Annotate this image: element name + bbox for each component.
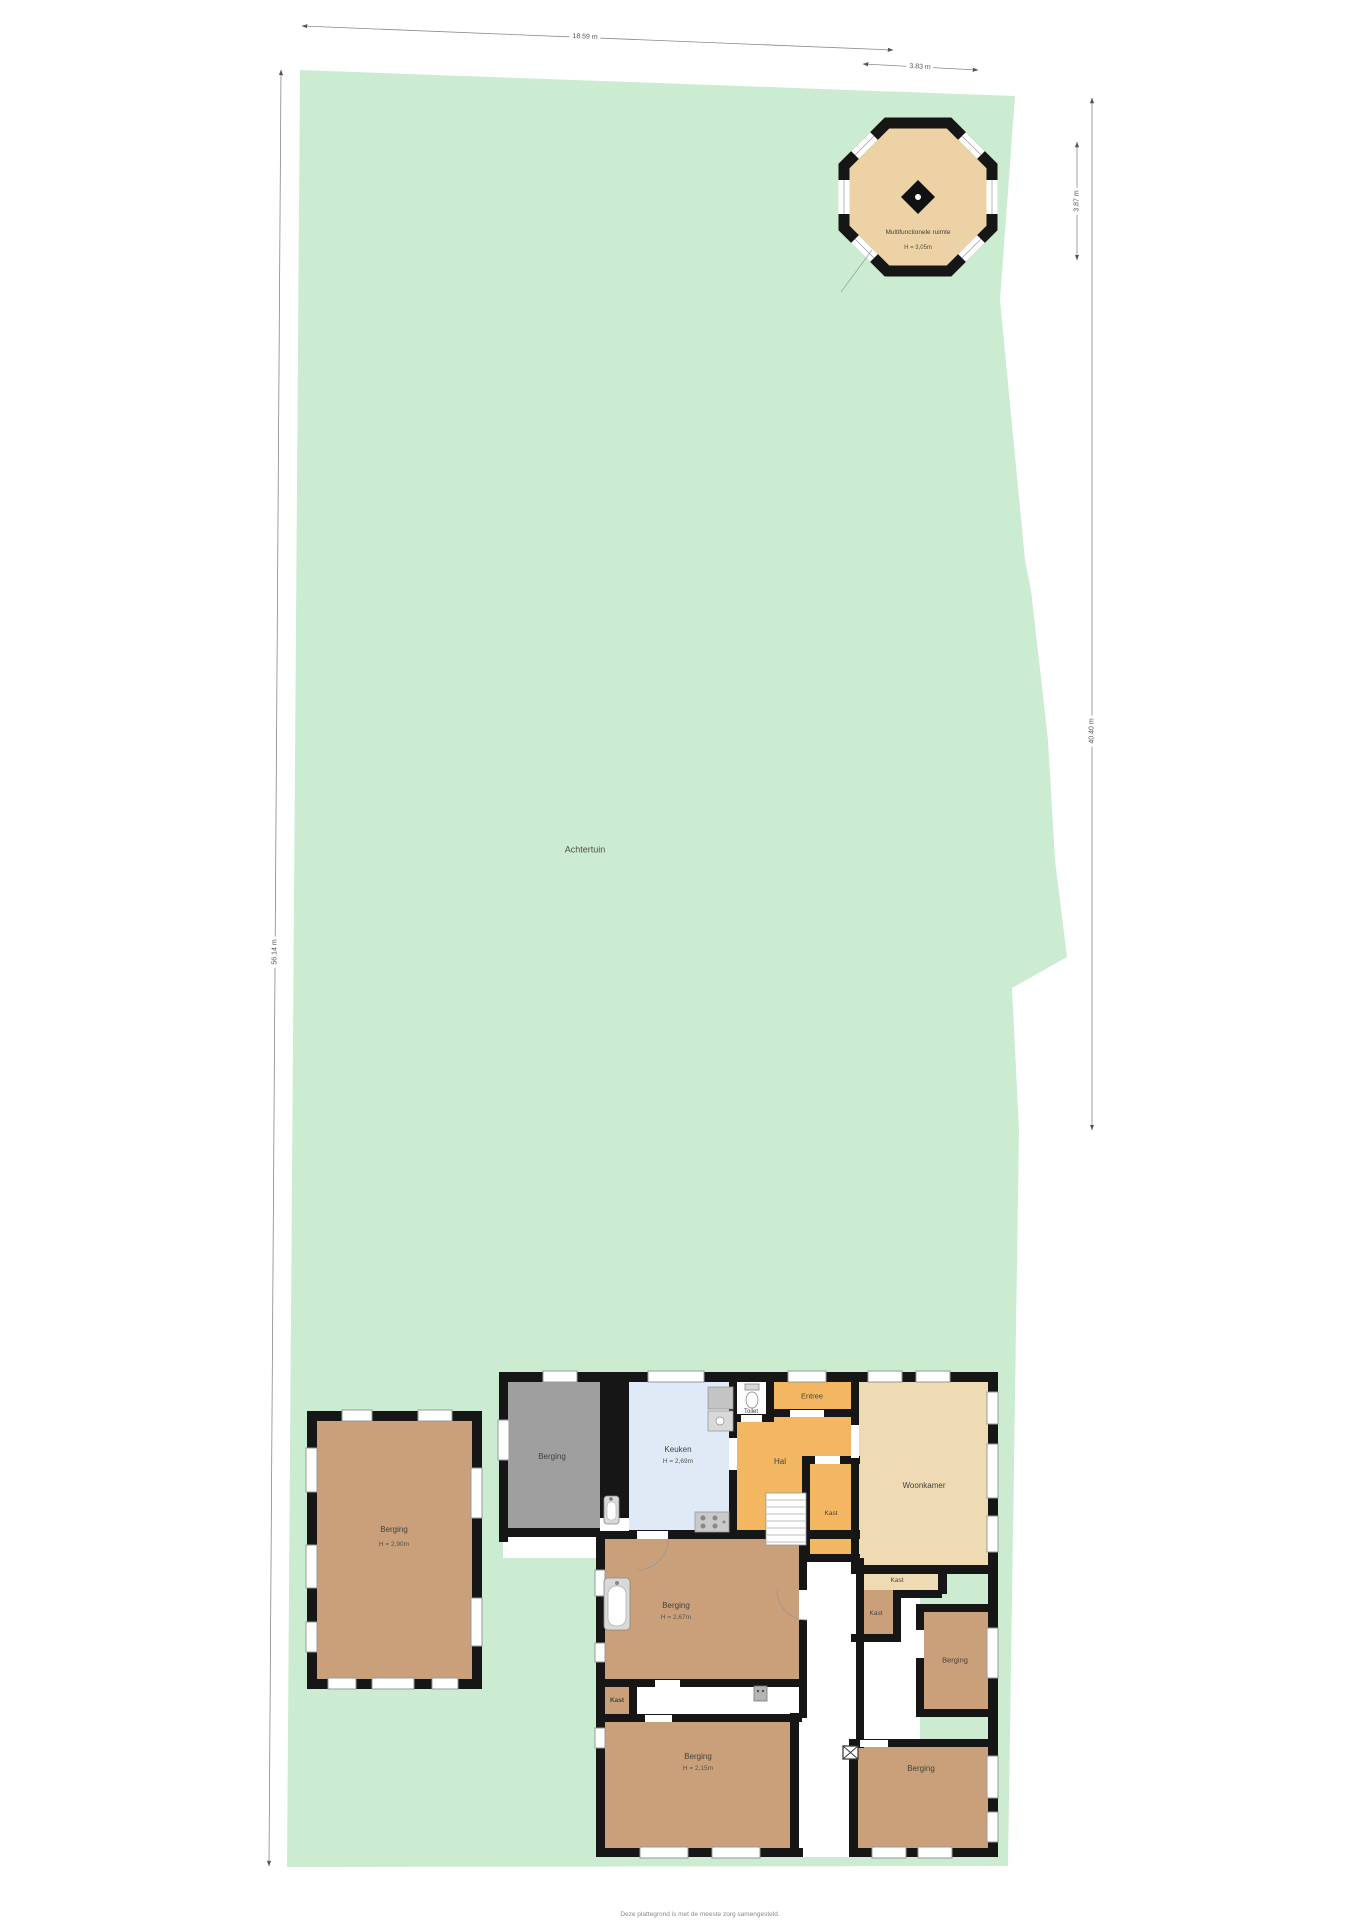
outbuilding-height-label: H = 2,90m bbox=[379, 1542, 409, 1549]
dim-octagon-height: 3.87 m bbox=[1074, 187, 1081, 214]
room-entree: Entree bbox=[801, 1392, 823, 1400]
dim-left-length: 56.14 m bbox=[272, 936, 279, 967]
dim-octagon-width: 3.83 m bbox=[906, 63, 934, 71]
sink-icon bbox=[604, 1496, 619, 1524]
room-keuken-height: H = 2,69m bbox=[663, 1459, 693, 1466]
room-berging-sw-height: H = 2,15m bbox=[683, 1766, 713, 1773]
boiler-icon bbox=[754, 1686, 767, 1701]
room-berging-sw: Berging bbox=[684, 1753, 712, 1761]
footer-disclaimer-line1: Deze plattegrond is met de meeste zorg s… bbox=[620, 1912, 779, 1919]
bathtub-icon bbox=[604, 1578, 630, 1630]
dim-right-length: 40.40 m bbox=[1089, 715, 1096, 746]
room-kast-bold: Kast bbox=[610, 1698, 624, 1705]
kitchen-counter-icon bbox=[708, 1387, 733, 1431]
outbuilding-label: Berging bbox=[380, 1526, 408, 1534]
room-berging-se: Berging bbox=[907, 1765, 935, 1773]
room-berging-center: Berging bbox=[662, 1602, 690, 1610]
site-floorplan: 18.59 m 3.83 m 3.87 m 40.40 m 56.14 m Ac… bbox=[0, 0, 1358, 1920]
toilet-icon bbox=[745, 1384, 759, 1408]
garden-label: Achtertuin bbox=[565, 846, 606, 855]
room-berging-mid: Berging bbox=[942, 1656, 968, 1664]
room-kast-strip: Kast bbox=[890, 1578, 903, 1585]
octagon-room-label: Multifunctionele ruimte bbox=[885, 230, 950, 237]
stove-icon bbox=[695, 1512, 729, 1532]
stairs-icon bbox=[766, 1493, 806, 1545]
room-hal: Hal bbox=[774, 1458, 786, 1466]
room-berging-top: Berging bbox=[538, 1453, 566, 1461]
dim-top-width: 18.59 m bbox=[569, 33, 601, 41]
shaft-icon bbox=[843, 1746, 858, 1759]
room-keuken: Keuken bbox=[664, 1446, 691, 1454]
room-woonkamer: Woonkamer bbox=[903, 1482, 946, 1490]
octagon-height-label: H = 3,05m bbox=[904, 245, 932, 251]
room-kast-hal: Kast bbox=[824, 1511, 837, 1518]
room-berging-center-height: H = 2,67m bbox=[661, 1615, 691, 1622]
room-toilet: Toilet bbox=[744, 1409, 758, 1415]
outbuilding bbox=[306, 1410, 482, 1689]
room-kast-mid: Kast bbox=[869, 1611, 882, 1618]
floorplan-graphic bbox=[0, 0, 1358, 1920]
